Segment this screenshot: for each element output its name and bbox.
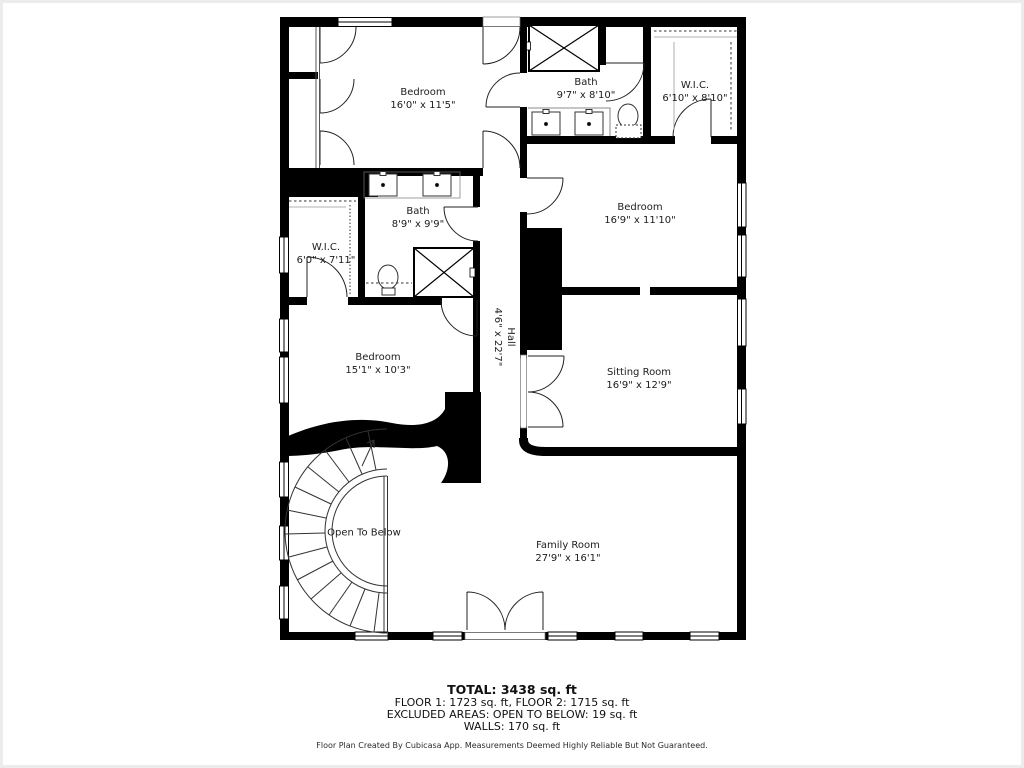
floor-plan-drawing	[0, 0, 1024, 768]
door-icon	[483, 27, 520, 64]
door-icon	[320, 131, 354, 165]
door-icon	[320, 27, 356, 63]
room-label-sitting-room: Sitting Room16'9" x 12'9"	[606, 366, 671, 392]
room-label-wic1: W.I.C.6'10" x 8'10"	[662, 79, 727, 105]
room-label-bath1: Bath9'7" x 8'10"	[557, 76, 616, 102]
toilet-icon	[378, 265, 398, 295]
sink-icon	[532, 110, 560, 136]
window	[738, 299, 747, 346]
window	[615, 632, 643, 640]
door-icon	[527, 178, 563, 214]
door-icon	[483, 131, 520, 168]
window	[738, 183, 747, 227]
double-door-frame	[521, 355, 527, 428]
double-door-icon	[528, 392, 563, 427]
window	[280, 526, 289, 560]
sink-icon	[369, 172, 397, 197]
room-label-hall: Hall4'6" x 22'7"	[491, 308, 517, 367]
total-area-text: TOTAL: 3438 sq. ft	[0, 683, 1024, 697]
sink-icon	[575, 110, 603, 136]
window	[738, 389, 747, 424]
window	[338, 18, 392, 27]
double-door-icon	[528, 356, 564, 392]
walls-area-text: WALLS: 170 sq. ft	[0, 721, 1024, 733]
room-label-bath2: Bath8'9" x 9'9"	[392, 205, 444, 231]
toilet-icon	[616, 104, 641, 138]
french-door-icon	[505, 592, 543, 630]
area-summary: TOTAL: 3438 sq. ft FLOOR 1: 1723 sq. ft,…	[0, 683, 1024, 733]
window	[690, 632, 719, 640]
room-label-open-to-below: Open To Below	[327, 527, 401, 540]
closet-rod-lines	[289, 31, 737, 296]
window	[548, 632, 577, 640]
room-label-bedroom1: Bedroom16'0" x 11'5"	[390, 86, 455, 112]
door-icon	[486, 73, 520, 107]
door-icon	[320, 79, 354, 113]
shower-icon	[527, 25, 600, 71]
window	[738, 235, 747, 277]
room-label-family-room: Family Room27'9" x 16'1"	[535, 539, 600, 565]
hall-family-corner-wall	[524, 438, 742, 452]
closet-details	[289, 27, 737, 296]
window	[433, 632, 462, 640]
shower-icon	[414, 248, 475, 297]
door-icon	[441, 300, 477, 336]
window	[280, 237, 289, 273]
credit-text: Floor Plan Created By Cubicasa App. Meas…	[0, 741, 1024, 750]
window	[280, 586, 289, 619]
window	[280, 357, 289, 403]
room-label-bedroom3: Bedroom15'1" x 10'3"	[345, 351, 410, 377]
french-door-icon	[467, 592, 505, 630]
balcony-door-sill	[483, 17, 520, 27]
room-label-bedroom2: Bedroom16'9" x 11'10"	[604, 201, 676, 227]
room-label-wic2: W.I.C.6'0" x 7'11"	[297, 241, 356, 267]
window	[280, 462, 289, 497]
french-door-sill	[465, 633, 545, 640]
sink-icon	[423, 172, 451, 197]
floor-plan-page: Bedroom16'0" x 11'5" Bath9'7" x 8'10" W.…	[0, 0, 1024, 768]
window	[280, 319, 289, 352]
door-icon	[444, 207, 478, 241]
